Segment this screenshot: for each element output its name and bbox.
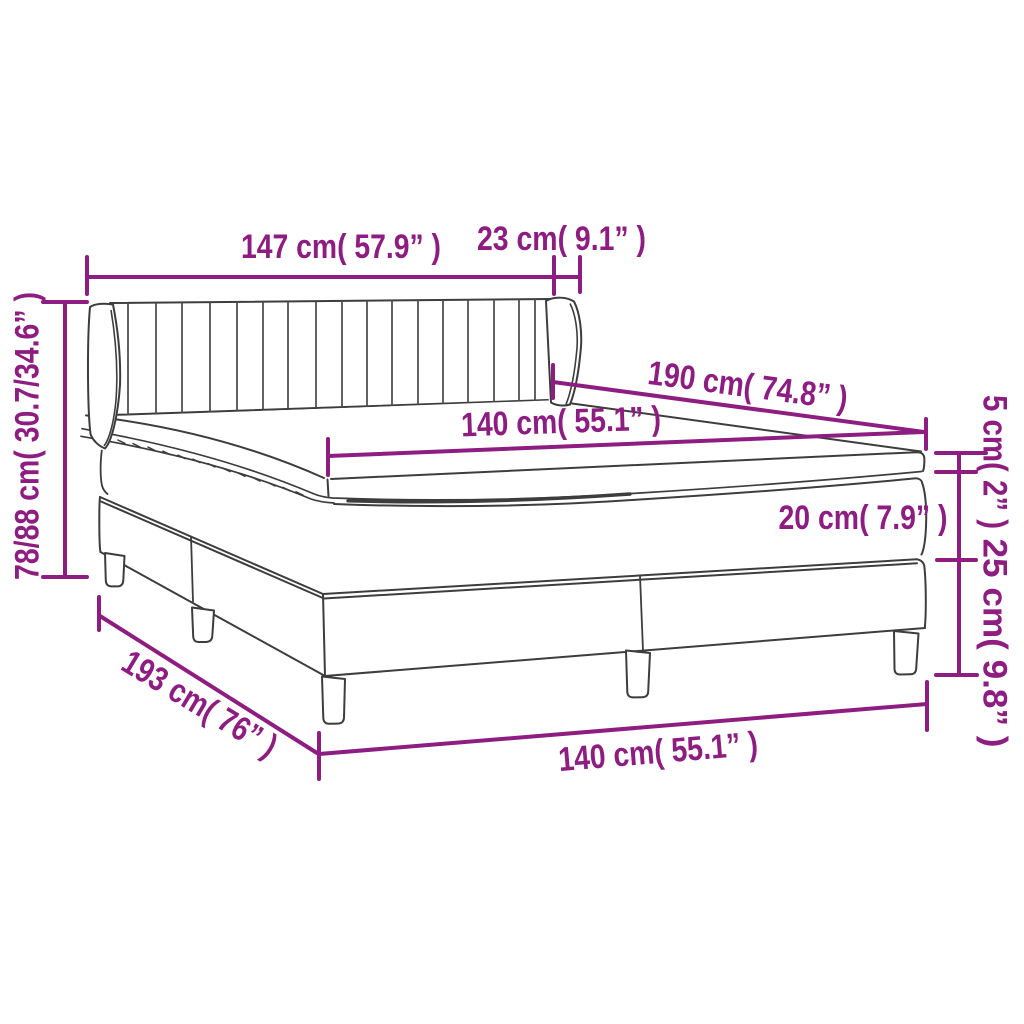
svg-text:140 cm( 55.1” ): 140 cm( 55.1” ): [460, 400, 661, 445]
svg-text:78/88 cm( 30.7/34.6” ): 78/88 cm( 30.7/34.6” ): [9, 292, 47, 580]
svg-text:25 cm( 9.8” ): 25 cm( 9.8” ): [976, 539, 1014, 748]
svg-text:147 cm( 57.9” ): 147 cm( 57.9” ): [241, 228, 441, 266]
svg-text:20 cm( 7.9” ): 20 cm( 7.9” ): [779, 499, 948, 537]
svg-text:5 cm( 2” ): 5 cm( 2” ): [976, 395, 1014, 529]
svg-text:23 cm( 9.1” ): 23 cm( 9.1” ): [477, 220, 646, 258]
